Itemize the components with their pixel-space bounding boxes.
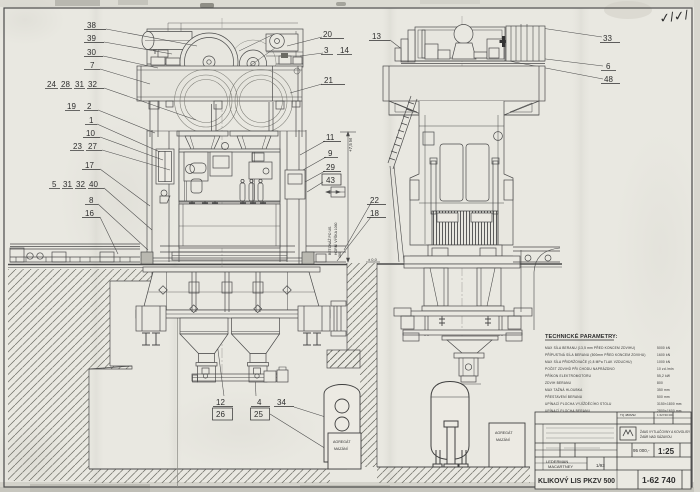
svg-text:8: 8 (89, 196, 94, 205)
svg-text:30: 30 (87, 48, 96, 57)
svg-text:13: 13 (372, 32, 381, 41)
svg-text:TECHNICKÉ PARAMETRY:: TECHNICKÉ PARAMETRY: (545, 332, 617, 340)
svg-text:+7,5 M: +7,5 M (348, 138, 353, 152)
svg-text:ŽďÁR NAD SÁZAVOU: ŽďÁR NAD SÁZAVOU (640, 434, 673, 439)
svg-text:34: 34 (277, 398, 286, 407)
svg-text:± 0,0: ± 0,0 (368, 257, 378, 262)
svg-text:16: 16 (85, 209, 94, 218)
svg-text:1000 kN: 1000 kN (657, 360, 671, 364)
svg-text:KLIKOVÝ LIS PKZV 500: KLIKOVÝ LIS PKZV 500 (538, 476, 615, 485)
svg-text:POČET ZDVIHŮ PŘI CHODU NAPRÁZD: POČET ZDVIHŮ PŘI CHODU NAPRÁZDNO (545, 366, 615, 371)
svg-text:25: 25 (254, 410, 263, 419)
svg-text:32: 32 (76, 180, 85, 189)
svg-text:21: 21 (324, 76, 333, 85)
svg-text:AGREGÁT: AGREGÁT (333, 440, 351, 444)
svg-text:350 mm: 350 mm (657, 388, 670, 392)
svg-text:MAX SÍLA BERANU (13,5 mm PŘED: MAX SÍLA BERANU (13,5 mm PŘED KONCEM ZDV… (545, 345, 635, 350)
svg-text:38: 38 (87, 21, 96, 30)
svg-text:29: 29 (326, 163, 335, 172)
svg-text:9: 9 (328, 149, 333, 158)
svg-text:ŽďAS VYTLAČOVNY A KOVOLISY: ŽďAS VYTLAČOVNY A KOVOLISY (640, 429, 691, 434)
svg-text:AGREGÁT: AGREGÁT (495, 431, 513, 435)
svg-text:18: 18 (370, 209, 379, 218)
svg-text:20: 20 (323, 30, 332, 39)
svg-text:48: 48 (604, 75, 613, 84)
svg-text:27: 27 (88, 142, 97, 151)
svg-text:1:25: 1:25 (658, 447, 675, 456)
svg-text:14: 14 (340, 46, 349, 55)
svg-text:ZDVIH BERANU: ZDVIH BERANU (545, 381, 572, 385)
svg-text:3150×1800 mm: 3150×1800 mm (657, 402, 682, 406)
svg-text:12: 12 (216, 398, 225, 407)
svg-text:3: 3 (324, 46, 329, 55)
svg-text:PŘÍKON ELEKTROMOTORU: PŘÍKON ELEKTROMOTORU (545, 373, 592, 378)
svg-text:1/93: 1/93 (596, 463, 605, 468)
svg-text:TQ 4806/92: TQ 4806/92 (620, 413, 636, 417)
svg-text:40: 40 (89, 180, 98, 189)
svg-text:BETONÁŽ PO US.: BETONÁŽ PO US. (327, 226, 332, 255)
svg-text:10 zd./min: 10 zd./min (657, 367, 674, 371)
svg-text:6: 6 (606, 62, 611, 71)
svg-text:4: 4 (257, 398, 262, 407)
svg-text:1 62740 001: 1 62740 001 (657, 413, 674, 417)
svg-text:26: 26 (216, 410, 225, 419)
svg-text:55,2 kW: 55,2 kW (657, 374, 670, 378)
svg-text:MAZÁNÍ: MAZÁNÍ (334, 447, 348, 451)
svg-text:22: 22 (370, 196, 379, 205)
svg-text:800: 800 (657, 381, 663, 385)
svg-text:MAX TAŽNÁ HLOUBKA: MAX TAŽNÁ HLOUBKA (545, 387, 583, 392)
svg-text:480: 480 (338, 252, 342, 258)
svg-text:5: 5 (52, 180, 57, 189)
svg-text:31: 31 (63, 180, 72, 189)
svg-text:2: 2 (87, 102, 92, 111)
svg-text:95 000,-: 95 000,- (633, 448, 650, 453)
svg-text:MAX SÍLA PŘIDRŽOVAČE (0,8 MPa: MAX SÍLA PŘIDRŽOVAČE (0,8 MPa TLAK VZDUC… (545, 359, 632, 364)
svg-text:10: 10 (86, 129, 95, 138)
svg-text:500 mm: 500 mm (657, 395, 670, 399)
svg-text:PŘESTAVENÍ BERANU: PŘESTAVENÍ BERANU (545, 394, 583, 399)
svg-text:19: 19 (67, 102, 76, 111)
svg-text:1-62 740: 1-62 740 (642, 475, 676, 485)
svg-text:5000 kN: 5000 kN (657, 346, 671, 350)
svg-text:33: 33 (603, 34, 612, 43)
svg-text:43: 43 (326, 176, 335, 185)
svg-text:MACARTNEY: MACARTNEY (548, 464, 573, 469)
svg-text:HORNÍ VÝŠKA 1060: HORNÍ VÝŠKA 1060 (333, 222, 338, 255)
svg-text:1600 kN: 1600 kN (657, 353, 671, 357)
svg-text:PŘÍPUSTNÁ SÍLA BERANU (500mm P: PŘÍPUSTNÁ SÍLA BERANU (500mm PŘED KONCEM… (545, 352, 646, 357)
svg-text:7: 7 (90, 61, 95, 70)
svg-text:11: 11 (326, 133, 335, 142)
svg-text:31: 31 (75, 80, 84, 89)
svg-text:24: 24 (47, 80, 56, 89)
svg-text:1: 1 (89, 116, 94, 125)
svg-text:39: 39 (87, 34, 96, 43)
svg-text:32: 32 (88, 80, 97, 89)
svg-text:17: 17 (85, 161, 94, 170)
svg-text:MAZÁNÍ: MAZÁNÍ (496, 438, 510, 442)
svg-text:28: 28 (61, 80, 70, 89)
svg-text:UPÍNACÍ PLOCHA VYJÍŽDĚCÍHO STO: UPÍNACÍ PLOCHA VYJÍŽDĚCÍHO STOLU (545, 401, 612, 406)
svg-text:23: 23 (73, 142, 82, 151)
